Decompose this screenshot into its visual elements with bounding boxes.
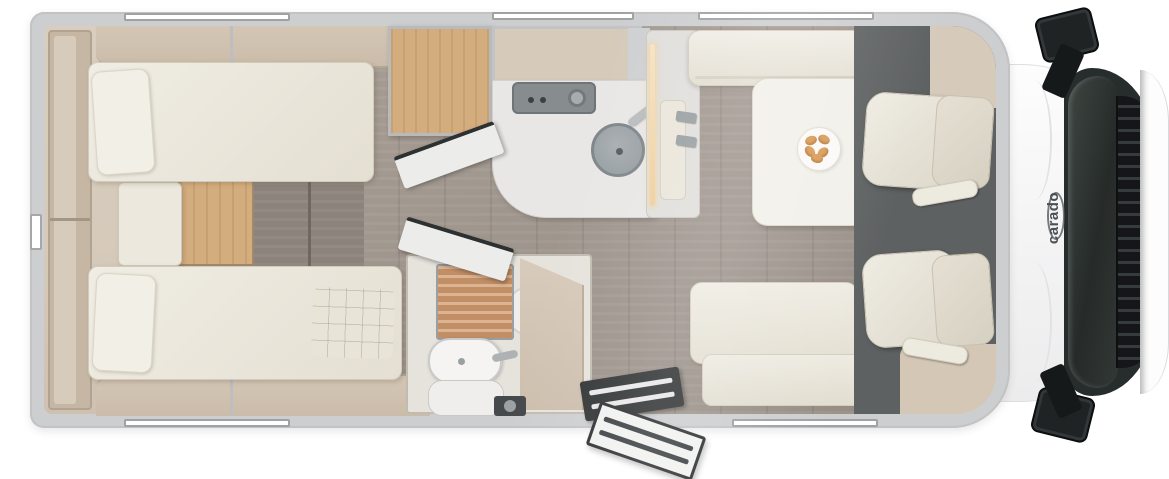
quilted-blanket xyxy=(311,287,395,360)
two-burner-hob xyxy=(512,82,596,114)
driver-seat-backrest xyxy=(931,252,995,348)
ambient-light-strip xyxy=(650,44,655,206)
locker-divider xyxy=(230,26,233,66)
between-beds-nightstand xyxy=(118,182,182,266)
locker-divider xyxy=(230,376,233,416)
toilet-cassette xyxy=(494,396,526,416)
croissant xyxy=(804,134,818,147)
hob-knob xyxy=(528,97,534,103)
toilet xyxy=(428,380,504,416)
window-top-kitchen xyxy=(492,12,634,20)
hob-knob xyxy=(540,97,546,103)
brand-logo-oval xyxy=(1047,192,1065,240)
window-top-dinette xyxy=(698,12,874,20)
passenger-seat-backrest xyxy=(931,94,995,190)
between-beds-floor xyxy=(252,176,364,266)
overhead-locker-bottom xyxy=(96,374,430,416)
basin-drain xyxy=(458,358,465,365)
window-bottom-rear xyxy=(124,419,290,427)
cassette-knob xyxy=(504,400,516,412)
brand-logo: carado xyxy=(1036,176,1072,260)
hob-burner xyxy=(568,89,586,107)
kitchen-sink xyxy=(591,123,645,177)
window-top-rear xyxy=(124,13,290,21)
rear-storage-divider xyxy=(50,218,90,221)
rear-hatch-window xyxy=(30,214,42,250)
washbasin xyxy=(428,338,502,384)
front-bumper xyxy=(1140,70,1169,394)
food-plate xyxy=(797,127,841,171)
pillow-left-bed xyxy=(90,68,155,176)
side-bench-backrest xyxy=(690,282,858,364)
windshield-glass xyxy=(1068,76,1118,388)
rear-storage-compartment xyxy=(48,30,92,410)
wardrobe-wood-top xyxy=(388,26,492,136)
motorhome-floorplan-image: carado xyxy=(0,0,1169,479)
hood-seam-line xyxy=(1016,262,1052,382)
floor-step-divider xyxy=(308,176,311,266)
sink-drain xyxy=(616,148,623,155)
bed-access-wood-step xyxy=(178,176,254,266)
window-bottom-dinette xyxy=(732,419,878,427)
pillow-right-bed xyxy=(91,272,156,373)
croissant xyxy=(817,133,832,146)
kitchen-overhead-cabinet xyxy=(492,26,642,88)
